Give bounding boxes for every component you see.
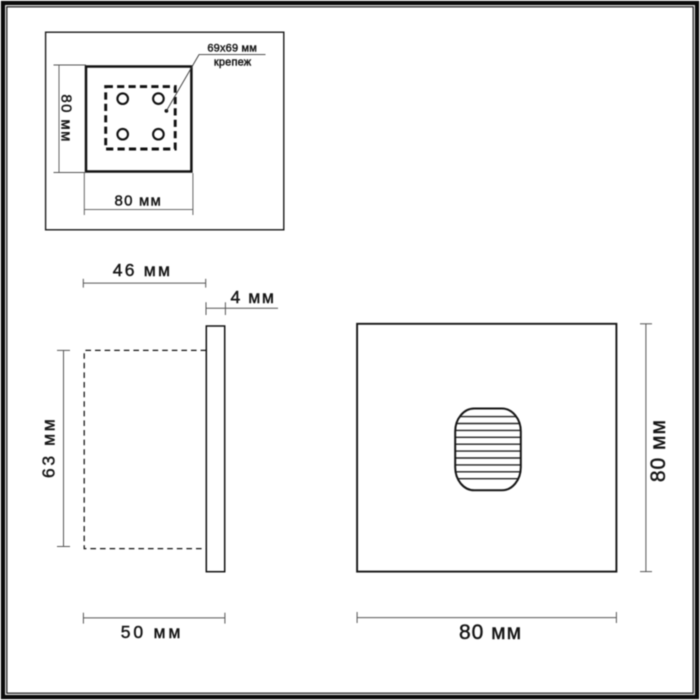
svg-text:63 мм: 63 мм [39,417,59,478]
svg-text:крепеж: крепеж [214,56,252,68]
svg-text:46 мм: 46 мм [113,260,172,280]
svg-text:80 мм: 80 мм [57,94,74,142]
svg-text:80 мм: 80 мм [115,193,162,210]
svg-text:50 мм: 50 мм [121,622,183,642]
svg-text:69х69 мм: 69х69 мм [207,43,257,55]
svg-text:80 мм: 80 мм [647,419,670,482]
svg-text:80 мм: 80 мм [459,621,522,644]
svg-text:4 мм: 4 мм [230,287,275,307]
